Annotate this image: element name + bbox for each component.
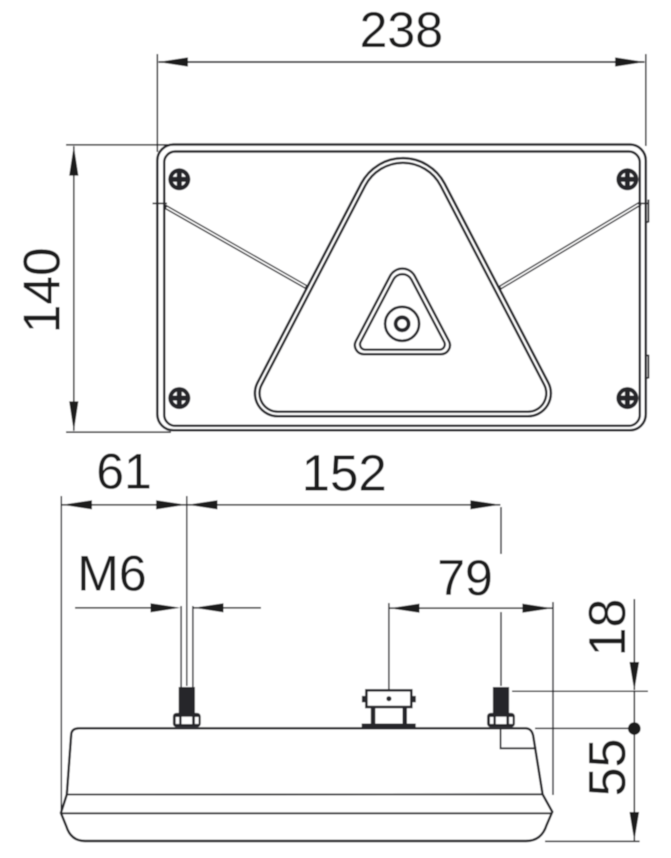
svg-text:152: 152: [302, 445, 387, 502]
svg-text:18: 18: [579, 599, 637, 657]
svg-text:55: 55: [579, 739, 637, 797]
svg-text:61: 61: [96, 444, 152, 500]
svg-text:79: 79: [437, 550, 493, 606]
svg-text:M6: M6: [77, 546, 146, 602]
svg-text:238: 238: [360, 2, 443, 58]
svg-text:140: 140: [13, 247, 71, 333]
